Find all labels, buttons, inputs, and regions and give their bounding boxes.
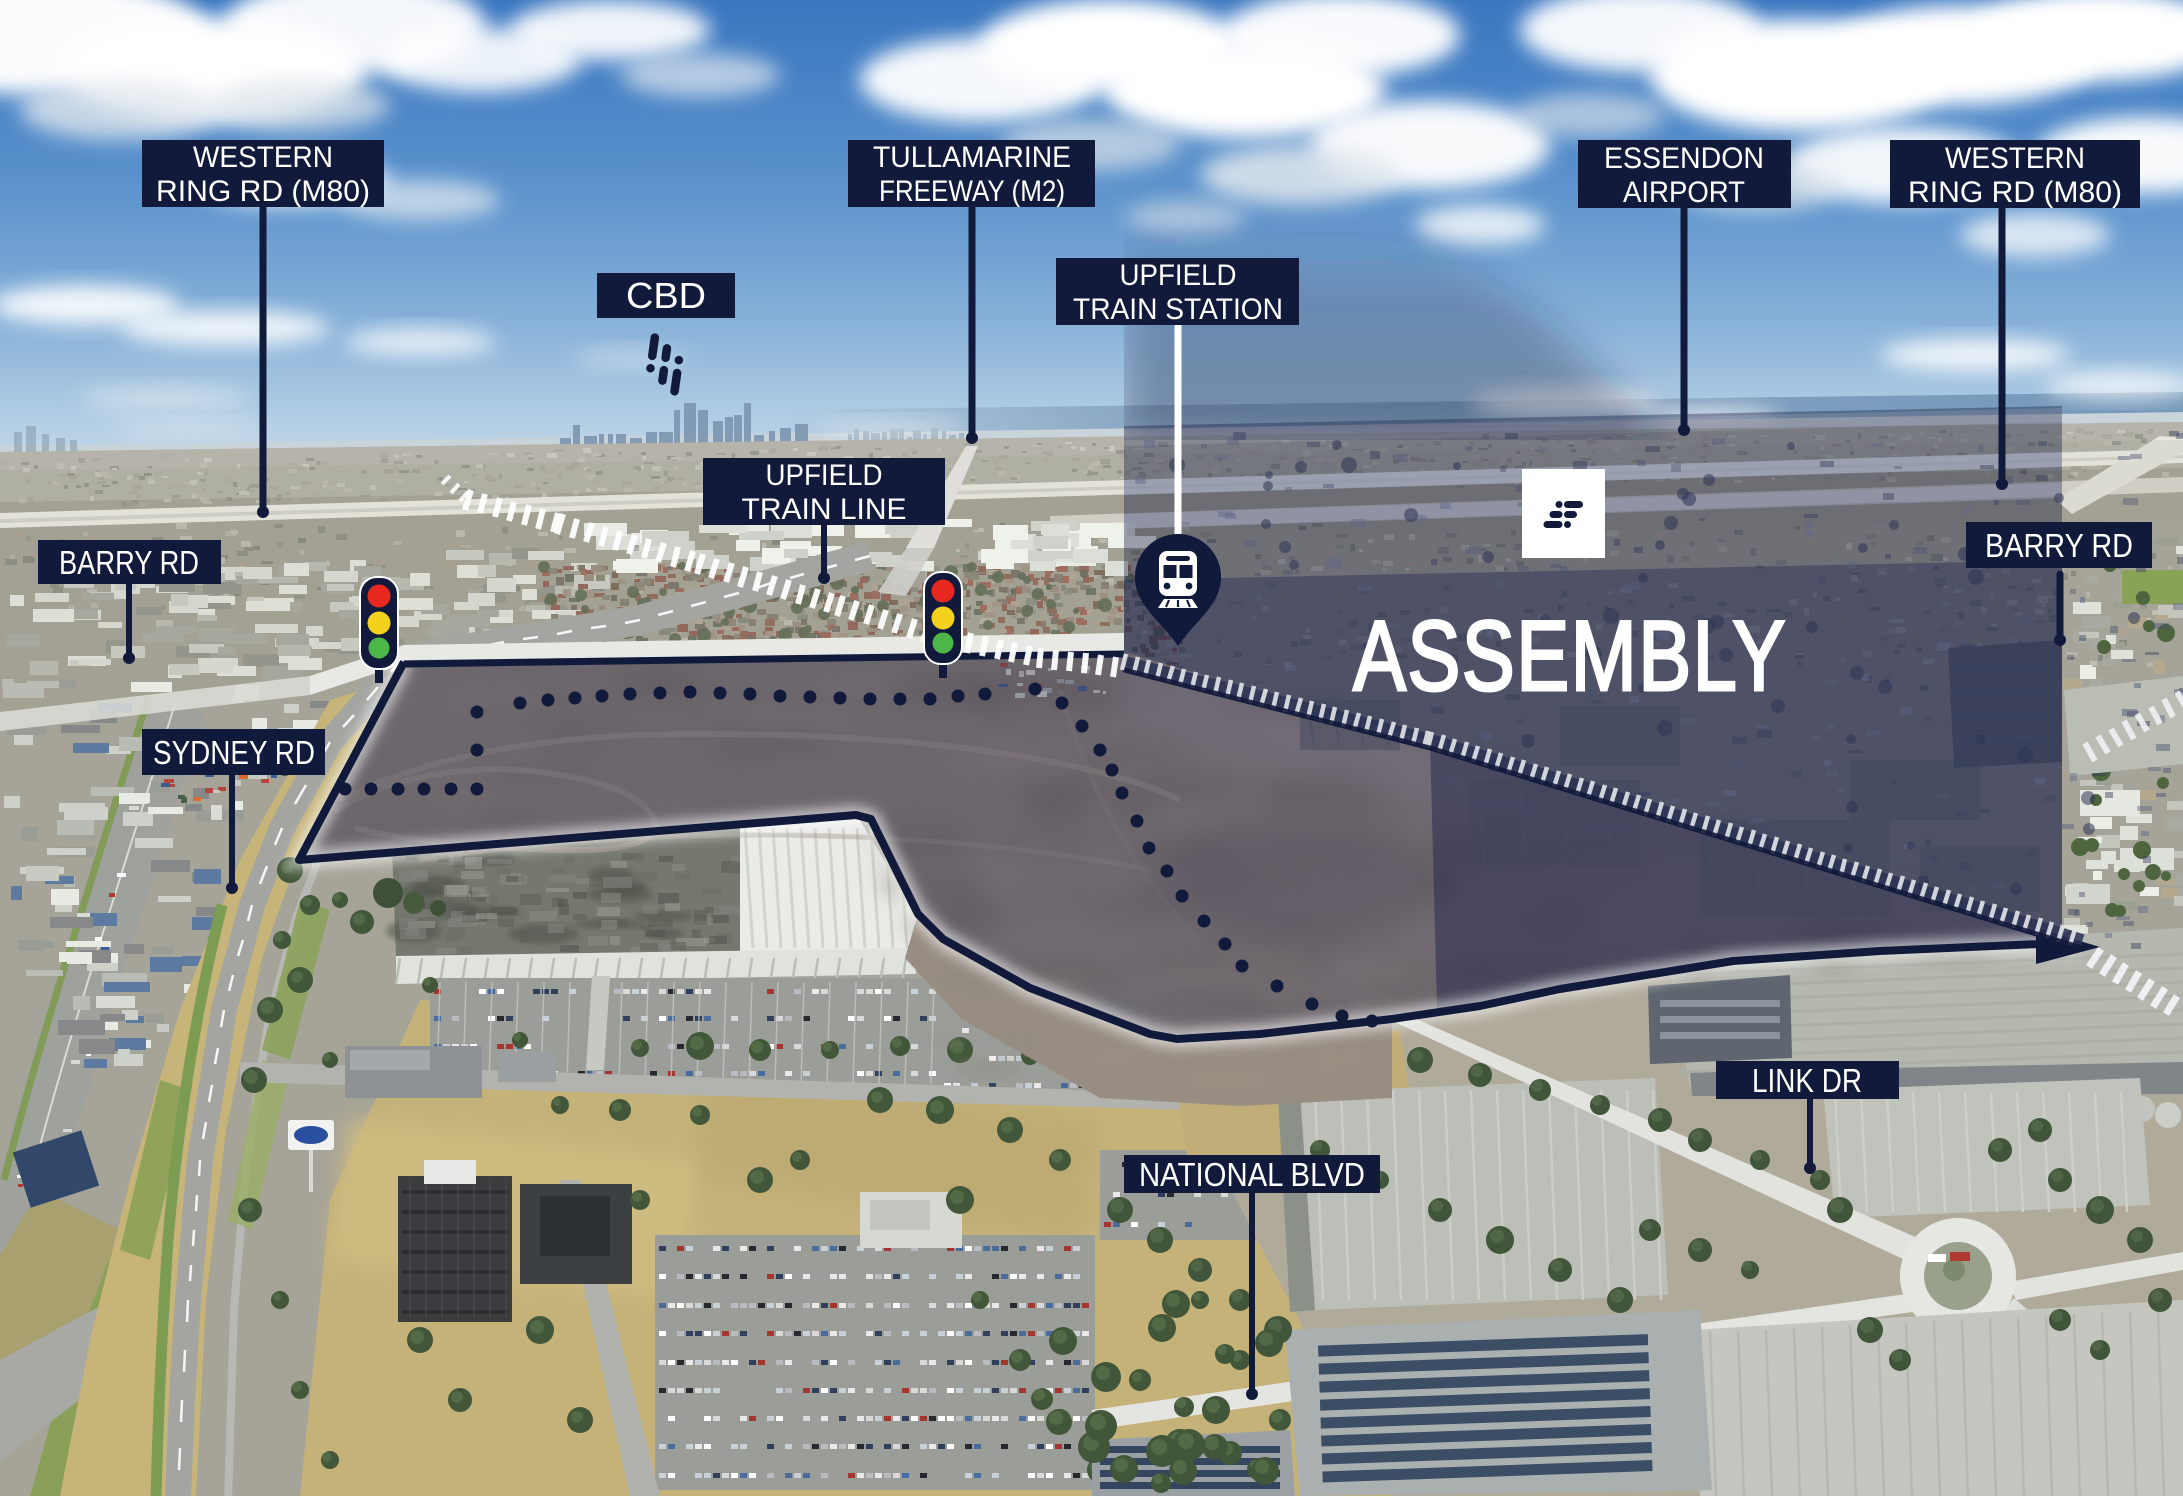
svg-text:TRAIN STATION: TRAIN STATION (1073, 293, 1283, 326)
svg-text:ESSENDON: ESSENDON (1604, 142, 1764, 175)
svg-text:ASSEMBLY: ASSEMBLY (1353, 601, 1787, 711)
svg-text:FREEWAY (M2): FREEWAY (M2) (879, 175, 1065, 208)
svg-text:WESTERN: WESTERN (193, 141, 333, 174)
svg-text:CBD: CBD (626, 275, 706, 316)
svg-text:UPFIELD: UPFIELD (766, 459, 883, 492)
svg-text:WESTERN: WESTERN (1945, 142, 2085, 175)
svg-text:RING RD (M80): RING RD (M80) (156, 175, 370, 208)
svg-text:TRAIN LINE: TRAIN LINE (742, 493, 907, 526)
svg-text:SYDNEY RD: SYDNEY RD (153, 734, 315, 771)
svg-text:BARRY RD: BARRY RD (59, 544, 199, 581)
svg-text:LINK DR: LINK DR (1752, 1062, 1862, 1099)
svg-text:AIRPORT: AIRPORT (1623, 176, 1745, 209)
svg-text:NATIONAL BLVD: NATIONAL BLVD (1139, 1156, 1365, 1193)
svg-text:RING RD (M80): RING RD (M80) (1908, 176, 2122, 209)
svg-text:BARRY RD: BARRY RD (1985, 527, 2133, 564)
svg-text:UPFIELD: UPFIELD (1120, 259, 1237, 292)
svg-text:TULLAMARINE: TULLAMARINE (873, 141, 1071, 174)
